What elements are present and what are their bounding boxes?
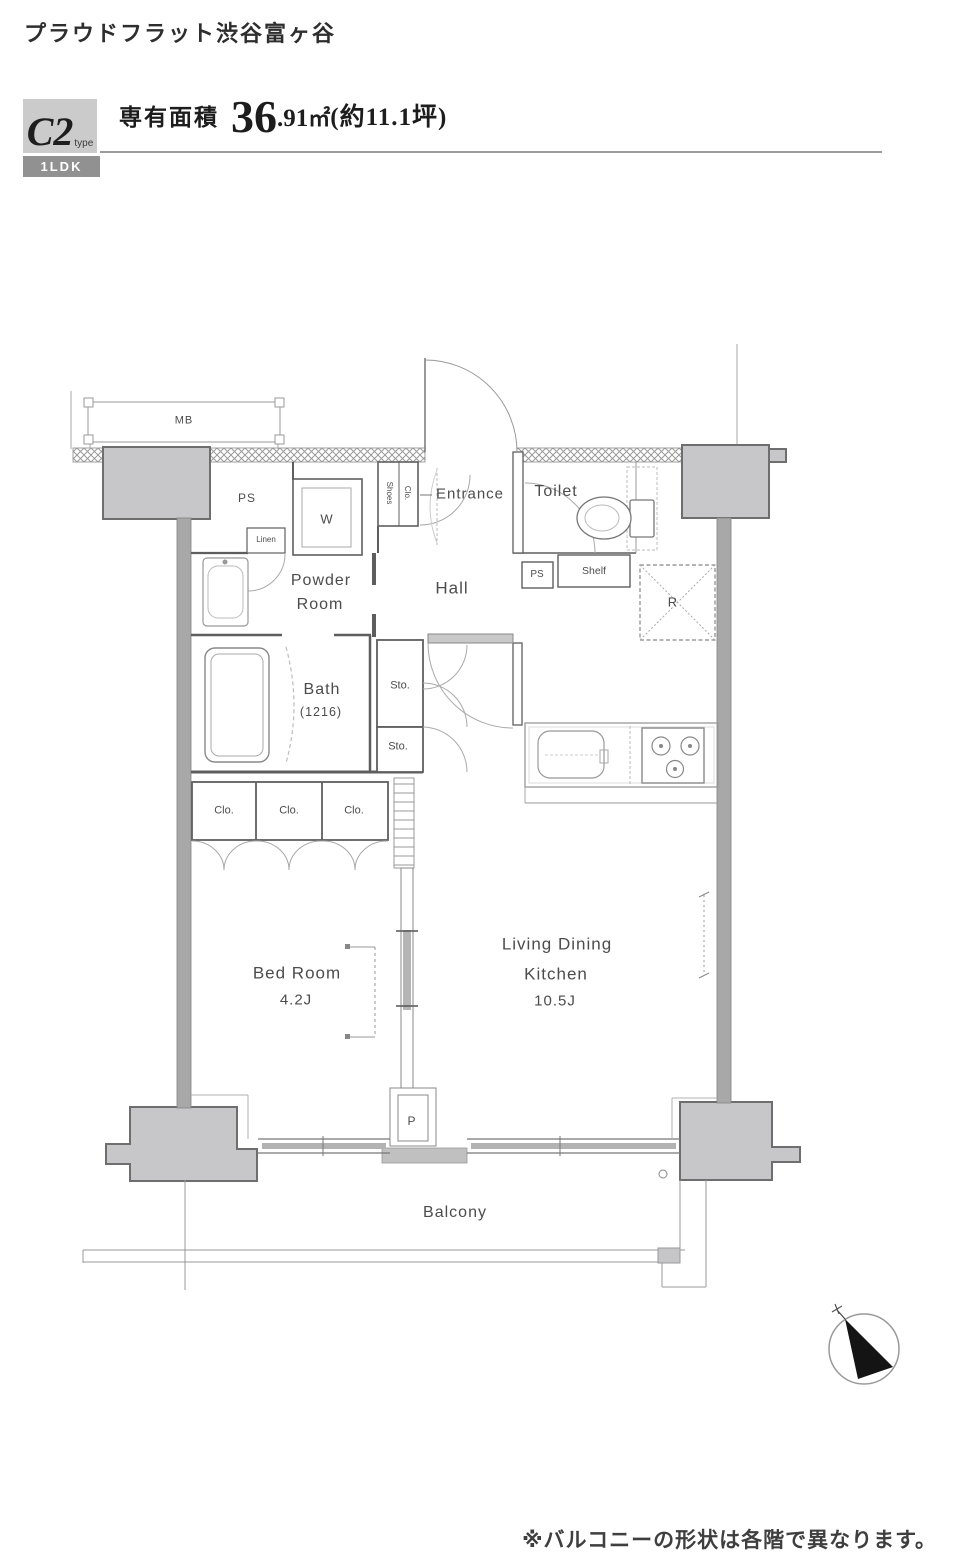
label-hall: Hall — [435, 580, 468, 597]
label-shoes-closet-2: Clo. — [403, 486, 411, 500]
label-toilet: Toilet — [534, 484, 577, 500]
label-pipe-space: P — [407, 1115, 416, 1127]
label-closet-2: Clo. — [279, 806, 299, 817]
label-linen: Linen — [256, 536, 276, 544]
south-windows — [191, 1095, 717, 1156]
label-ps-upper: PS — [238, 492, 256, 504]
label-ps-lower: PS — [530, 570, 543, 580]
label-storage-2: Sto. — [388, 742, 408, 753]
label-shoes-closet-1: Shoes — [385, 482, 393, 505]
label-refrigerator: R — [668, 596, 678, 609]
compass-icon — [829, 1304, 899, 1384]
label-shelf: Shelf — [582, 566, 606, 577]
outline-thin-lines — [71, 344, 737, 449]
floorplan-drawing — [0, 0, 960, 1563]
label-bath-size: (1216) — [300, 706, 342, 719]
label-powder-room-1: Powder — [291, 573, 351, 589]
label-washer: W — [320, 513, 333, 526]
label-bath: Bath — [304, 682, 341, 698]
label-meter-box: MB — [175, 416, 194, 427]
label-ldk-1: Living Dining — [502, 936, 612, 953]
label-ldk-size: 10.5J — [534, 994, 576, 1009]
balcony-note: ※バルコニーの形状は各階で異なります。 — [522, 1524, 937, 1554]
balcony-outline — [83, 1170, 706, 1290]
label-bedroom-size: 4.2J — [280, 993, 312, 1008]
label-closet-1: Clo. — [214, 806, 234, 817]
label-balcony: Balcony — [423, 1205, 487, 1221]
label-powder-room-2: Room — [297, 597, 344, 613]
label-ldk-2: Kitchen — [524, 966, 588, 983]
pipe-space — [382, 1088, 467, 1163]
floorplan-page: プラウドフラット渋谷富ヶ谷 C2 type 1LDK 専有面積 36 .91 ㎡… — [0, 0, 960, 1563]
folding-partition — [394, 778, 414, 868]
label-entrance: Entrance — [436, 487, 504, 502]
label-closet-3: Clo. — [344, 806, 364, 817]
label-storage-1: Sto. — [390, 681, 410, 692]
bedroom-partition — [396, 868, 418, 1090]
label-bedroom: Bed Room — [253, 965, 341, 982]
